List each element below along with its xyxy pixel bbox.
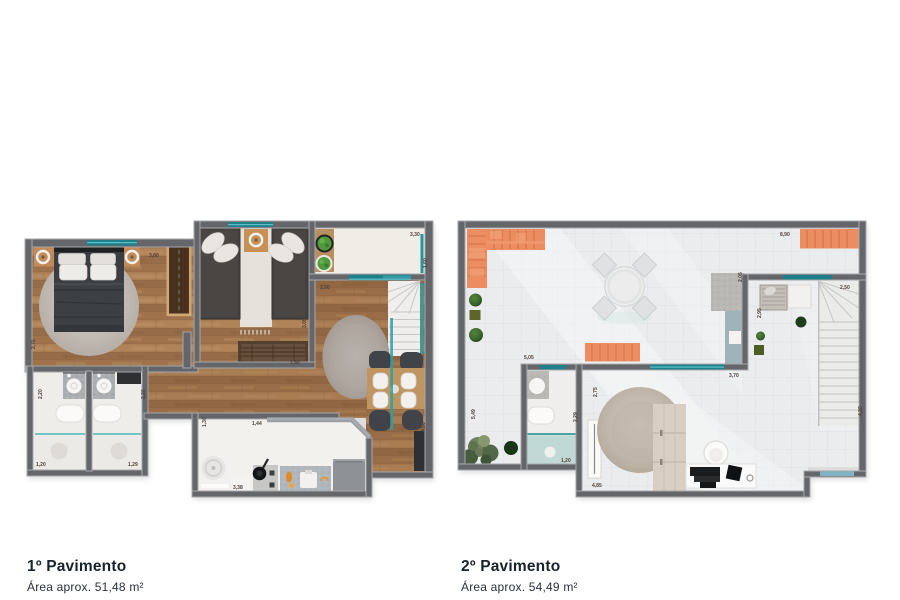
- svg-text:1,20: 1,20: [561, 458, 571, 464]
- svg-text:2,50: 2,50: [290, 360, 300, 366]
- svg-text:4,85: 4,85: [592, 483, 602, 489]
- svg-text:5,49: 5,49: [471, 409, 477, 419]
- svg-text:3,05: 3,05: [302, 318, 308, 328]
- svg-text:1,44: 1,44: [252, 421, 262, 427]
- svg-text:1,30: 1,30: [202, 417, 208, 427]
- svg-text:8,90: 8,90: [780, 232, 790, 238]
- svg-text:2,50: 2,50: [840, 285, 850, 291]
- svg-text:2,20: 2,20: [38, 389, 44, 399]
- svg-text:2,75: 2,75: [593, 387, 599, 397]
- svg-text:2,29: 2,29: [573, 412, 579, 422]
- svg-text:2,50: 2,50: [320, 285, 330, 291]
- svg-text:1,20: 1,20: [36, 462, 46, 468]
- svg-text:2,95: 2,95: [757, 308, 763, 318]
- svg-text:1º Pavimento: 1º Pavimento: [27, 558, 126, 575]
- svg-text:3,30: 3,30: [410, 232, 420, 238]
- svg-text:2,05: 2,05: [738, 272, 744, 282]
- svg-text:4,20: 4,20: [858, 406, 864, 416]
- svg-text:2º Pavimento: 2º Pavimento: [461, 558, 560, 575]
- svg-text:3,60: 3,60: [149, 253, 159, 259]
- svg-text:Área aprox. 51,48 m²: Área aprox. 51,48 m²: [27, 579, 144, 594]
- svg-text:4,50: 4,50: [421, 422, 427, 432]
- svg-text:5,05: 5,05: [524, 355, 534, 361]
- svg-text:1,60: 1,60: [423, 258, 429, 268]
- svg-text:3,70: 3,70: [729, 373, 739, 379]
- svg-text:Área aprox. 54,49 m²: Área aprox. 54,49 m²: [461, 579, 578, 594]
- svg-text:2,26: 2,26: [141, 389, 147, 399]
- svg-text:2,75: 2,75: [31, 339, 37, 349]
- svg-text:1,29: 1,29: [128, 462, 138, 468]
- svg-text:3,38: 3,38: [233, 485, 243, 491]
